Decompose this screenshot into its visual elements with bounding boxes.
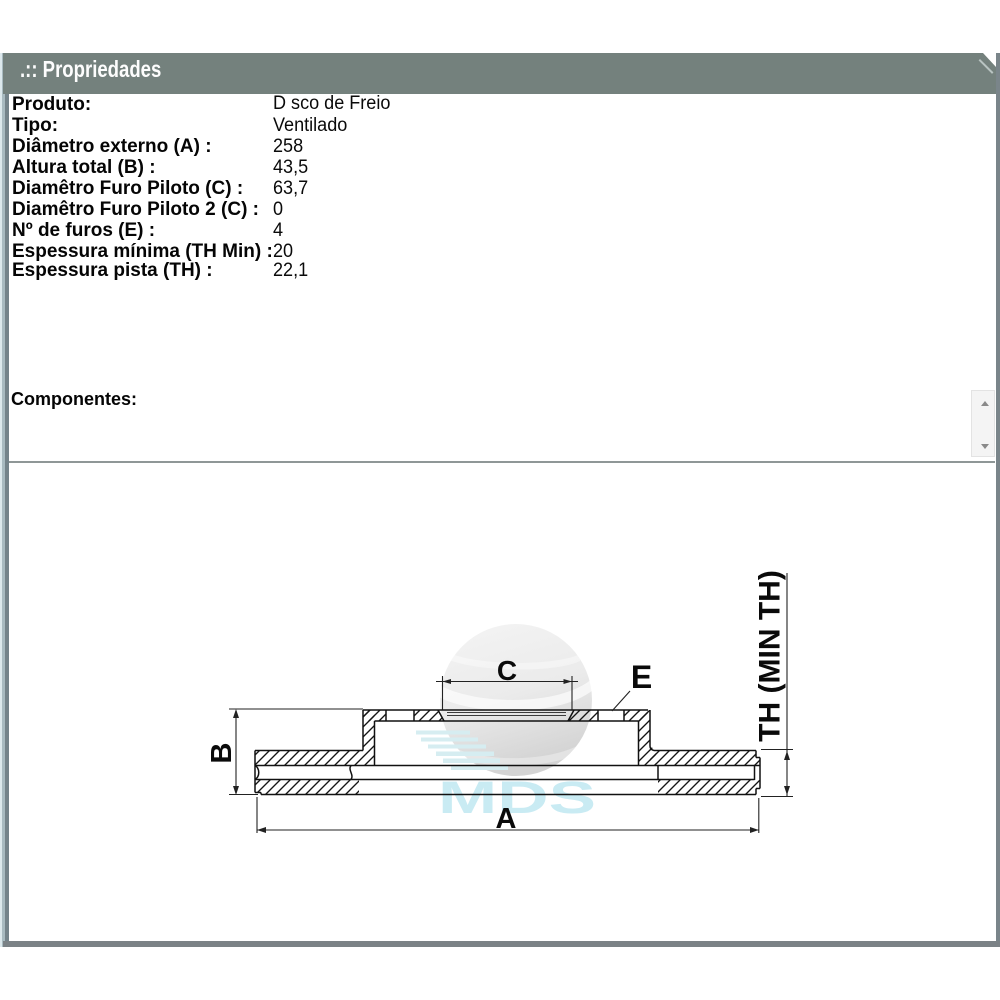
- svg-text:A: A: [496, 803, 517, 835]
- svg-text:TH (MIN TH): TH (MIN TH): [754, 570, 787, 742]
- svg-text:C: C: [497, 655, 517, 686]
- svg-text:B: B: [206, 743, 238, 764]
- svg-text:E: E: [631, 659, 652, 695]
